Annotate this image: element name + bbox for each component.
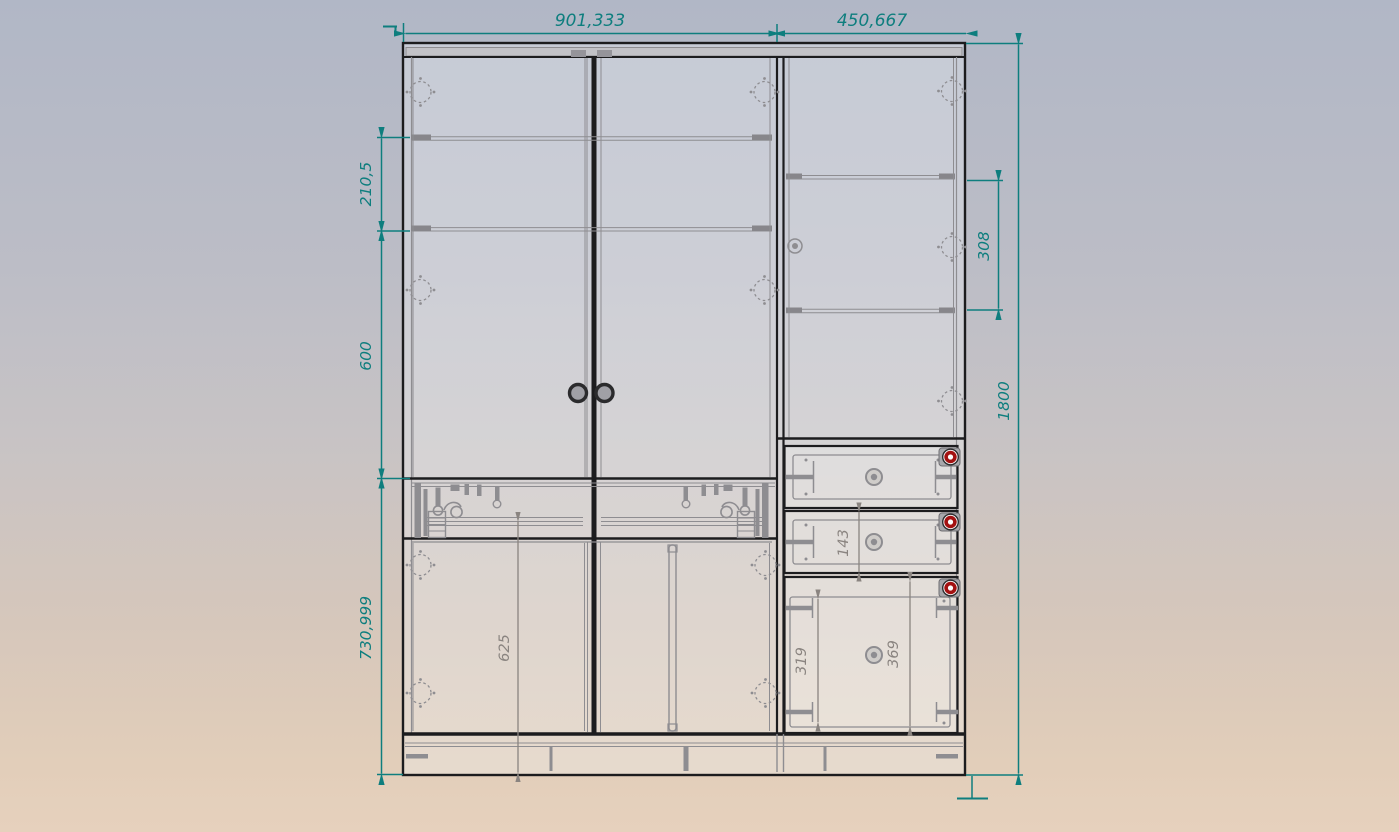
dim-lower-label: 730,999	[357, 596, 375, 660]
dim-total-height-label: 1800	[995, 381, 1013, 421]
dim-upper-label: 210,5	[357, 162, 375, 206]
dim-143-label: 143	[836, 529, 852, 557]
dim-319-label: 319	[794, 647, 810, 675]
door-knob-right[interactable]	[596, 385, 613, 402]
dim-width-right-label: 450,667	[837, 11, 907, 31]
drawer-2-red-knob[interactable]	[939, 513, 960, 531]
drawer-stack[interactable]	[785, 446, 961, 733]
drawer-3-red-knob[interactable]	[939, 579, 960, 597]
dim-369-label: 369	[886, 640, 902, 668]
drawer-2[interactable]	[785, 511, 961, 573]
door-top-bracket-left	[571, 50, 586, 57]
drawer-1[interactable]	[785, 446, 961, 508]
door-top-bracket-right	[597, 50, 612, 57]
drawer-3[interactable]	[785, 577, 961, 733]
drawer-1-red-knob[interactable]	[939, 448, 960, 466]
dim-625-label: 625	[497, 634, 513, 662]
door-knob-left[interactable]	[570, 385, 587, 402]
top-panel[interactable]	[406, 48, 962, 57]
dim-shelf-gap-label: 308	[975, 231, 993, 261]
dim-width-left-label: 901,333	[555, 11, 625, 31]
cad-viewport[interactable]: 901,333 450,667 210,5 600 730,999 308 18…	[0, 0, 1399, 832]
dim-middle-label: 600	[357, 341, 375, 371]
cad-canvas[interactable]: 901,333 450,667 210,5 600 730,999 308 18…	[0, 0, 1399, 832]
